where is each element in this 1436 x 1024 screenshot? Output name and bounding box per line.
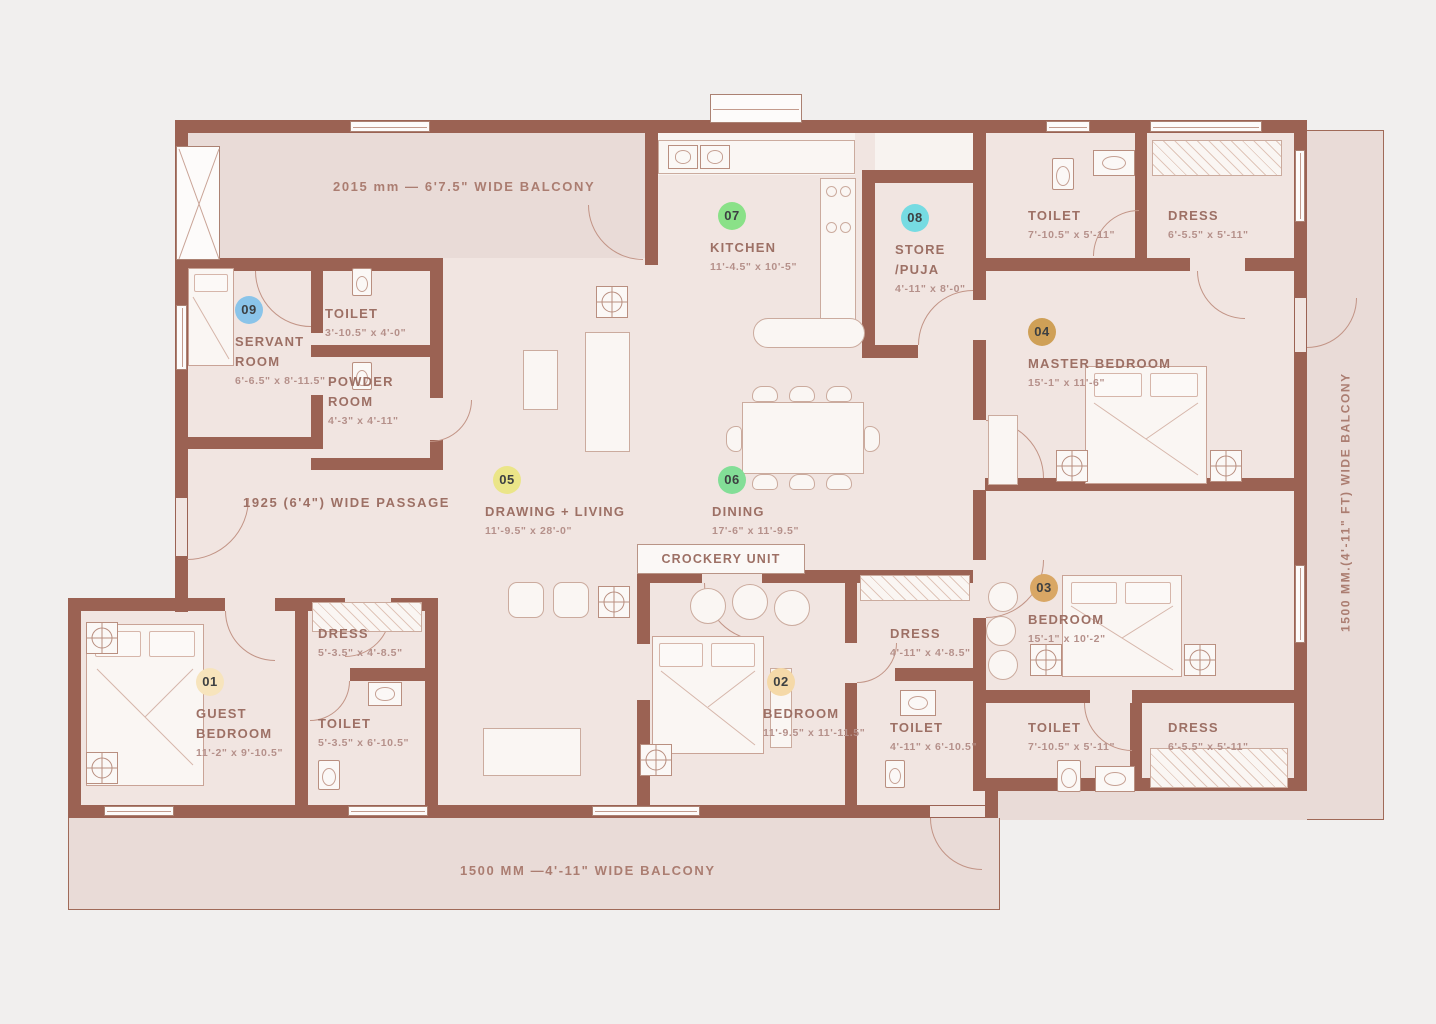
door-gap — [176, 498, 187, 556]
right-balcony-label: 1500 MM.(4'-11" FT) WIDE BALCONY — [1307, 330, 1384, 675]
room-label-dress-tr: DRESS 6'-5.5" x 5'-11" — [1168, 206, 1249, 241]
window — [1295, 150, 1305, 222]
door-arc — [918, 290, 973, 345]
wc — [318, 760, 340, 790]
shaft-window — [176, 146, 220, 260]
wc — [1057, 760, 1081, 792]
wall-segment — [645, 133, 658, 265]
wall-segment — [862, 345, 918, 358]
wall-segment — [1132, 690, 1307, 703]
window — [1295, 565, 1305, 643]
room-label-store: 08 STORE /PUJA 4'-11" x 8'-0" — [895, 204, 966, 295]
kitchen-hob-counter — [820, 178, 856, 323]
utility-zone — [875, 133, 973, 170]
column-marker — [598, 586, 630, 618]
wardrobe — [1152, 140, 1282, 176]
wc — [885, 760, 905, 788]
column-marker — [640, 744, 672, 776]
room-label-toilet-bed2: TOILET 4'-11" x 6'-10.5" — [890, 718, 977, 753]
room-badge-09: 09 — [235, 296, 263, 324]
door-arc — [225, 611, 275, 661]
kitchen-sink — [668, 145, 698, 169]
wall-segment — [430, 440, 443, 470]
wall-segment — [430, 258, 443, 398]
window — [1150, 121, 1262, 132]
washbasin — [368, 682, 402, 706]
wall-segment — [68, 598, 81, 818]
room-label-toilet-guest: TOILET 5'-3.5" x 6'-10.5" — [318, 714, 409, 749]
dining-chair — [752, 386, 778, 402]
door-arc — [930, 818, 982, 870]
kitchen-sink — [700, 145, 730, 169]
room-badge-01: 01 — [196, 668, 224, 696]
wall-segment — [985, 258, 1190, 271]
wall-segment — [425, 598, 438, 805]
armchair — [774, 590, 810, 626]
armchair — [732, 584, 768, 620]
room-badge-03: 03 — [1030, 574, 1058, 602]
room-label-master: 04 MASTER BEDROOM 15'-1" x 11'-6" — [1028, 318, 1171, 389]
dining-chair — [826, 386, 852, 402]
chair — [986, 616, 1016, 646]
hob-burner — [840, 222, 851, 233]
dining-chair — [789, 386, 815, 402]
sofa — [483, 728, 581, 776]
wall-segment — [311, 345, 442, 357]
wall-segment — [68, 598, 200, 611]
wall-segment — [845, 583, 857, 643]
room-badge-02: 02 — [767, 668, 795, 696]
hob-burner — [826, 186, 837, 197]
column-marker — [86, 622, 118, 654]
window — [350, 121, 430, 132]
armchair — [690, 588, 726, 624]
wall-segment — [311, 458, 431, 470]
lounge-seat — [508, 582, 544, 618]
column-marker — [1210, 450, 1242, 482]
room-label-drawing: 05 DRAWING + LIVING 11'-9.5" x 28'-0" — [485, 466, 625, 537]
lounge-seat — [553, 582, 589, 618]
side-table — [523, 350, 558, 410]
window — [176, 305, 187, 370]
room-label-guest: 01 GUEST BEDROOM 11'-2" x 9'-10.5" — [196, 668, 283, 759]
wall-segment — [350, 668, 425, 681]
room-label-kitchen: 07 KITCHEN 11'-4.5" x 10'-5" — [710, 202, 797, 273]
room-label-bed3: 03 BEDROOM 15'-1" x 10'-2" — [1028, 574, 1106, 645]
washbasin — [1093, 150, 1135, 176]
dining-chair — [826, 474, 852, 490]
dining-chair — [726, 426, 742, 452]
hob-burner — [840, 186, 851, 197]
column-marker — [1184, 644, 1216, 676]
wall-segment — [973, 618, 986, 791]
window — [104, 806, 174, 816]
room-label-bed2: 02 BEDROOM 11'-9.5" x 11'-11.5" — [763, 668, 865, 739]
chair — [988, 582, 1018, 612]
door-arc — [430, 400, 472, 442]
servant-bed — [188, 268, 234, 366]
window — [592, 806, 700, 816]
bottom-balcony-label: 1500 MM —4'-11" WIDE BALCONY — [460, 863, 716, 878]
room-label-dress-br: DRESS 6'-5.5" x 5'-11" — [1168, 718, 1249, 753]
wall-segment — [973, 340, 986, 420]
room-label-powder: POWDER ROOM 4'-3" x 4'-11" — [328, 372, 399, 427]
wall-segment — [182, 437, 323, 449]
window — [1046, 121, 1090, 132]
floor-plan: CROCKERY UNIT 2015 mm — 6'7.5" WIDE BALC… — [0, 0, 1436, 1024]
washbasin — [1095, 766, 1135, 792]
column-marker — [86, 752, 118, 784]
hob-burner — [826, 222, 837, 233]
room-label-servant: 09 SERVANT ROOM 6'-6.5" x 8'-11.5" — [235, 296, 326, 387]
wardrobe — [860, 575, 970, 601]
crockery-unit: CROCKERY UNIT — [637, 544, 805, 574]
room-label-toilet-br: TOILET 7'-10.5" x 5'-11" — [1028, 718, 1115, 753]
room-badge-08: 08 — [901, 204, 929, 232]
duct-box — [710, 94, 802, 123]
door-gap — [930, 806, 985, 817]
room-badge-05: 05 — [493, 466, 521, 494]
dresser — [988, 415, 1018, 485]
kitchen-island — [753, 318, 865, 348]
wall-segment — [637, 570, 650, 644]
dining-chair — [864, 426, 880, 452]
chair — [988, 650, 1018, 680]
wall-segment — [200, 598, 225, 611]
room-label-toilet-servant: TOILET 3'-10.5" x 4'-0" — [325, 304, 406, 339]
door-arc — [588, 205, 643, 260]
room-label-toilet-tr: TOILET 7'-10.5" x 5'-11" — [1028, 206, 1115, 241]
door-arc — [1197, 271, 1245, 319]
column-marker — [1030, 644, 1062, 676]
dining-table — [742, 402, 864, 474]
room-badge-07: 07 — [718, 202, 746, 230]
sofa — [585, 332, 630, 452]
wall-segment — [895, 668, 973, 681]
room-label-dining: 06 DINING 17'-6" x 11'-9.5" — [712, 466, 799, 537]
washbasin — [900, 690, 936, 716]
window — [348, 806, 428, 816]
top-balcony-floor — [188, 133, 645, 258]
column-marker — [1056, 450, 1088, 482]
top-balcony-label: 2015 mm — 6'7.5" WIDE BALCONY — [333, 179, 595, 194]
room-badge-06: 06 — [718, 466, 746, 494]
door-arc — [187, 498, 249, 560]
balcony-corner-strip — [998, 791, 1307, 820]
room-label-dress-guest: DRESS 5'-3.5" x 4'-8.5" — [318, 624, 403, 659]
crockery-unit-label: CROCKERY UNIT — [661, 552, 780, 566]
wall-segment — [973, 490, 986, 560]
wall-segment — [862, 170, 973, 183]
column-marker — [596, 286, 628, 318]
wall-segment — [1245, 258, 1307, 271]
wall-segment — [973, 133, 986, 300]
wall-segment — [985, 690, 1090, 703]
wall-segment — [295, 611, 308, 805]
wc — [1052, 158, 1074, 190]
wc — [352, 268, 372, 296]
door-gap — [1295, 298, 1306, 352]
bedroom2-bed — [652, 636, 764, 754]
passage-label: 1925 (6'4") WIDE PASSAGE — [243, 495, 450, 510]
room-badge-04: 04 — [1028, 318, 1056, 346]
wardrobe — [1150, 748, 1288, 788]
room-label-dress-bed2: DRESS 4'-11" x 4'-8.5" — [890, 624, 971, 659]
wall-segment — [68, 805, 998, 818]
